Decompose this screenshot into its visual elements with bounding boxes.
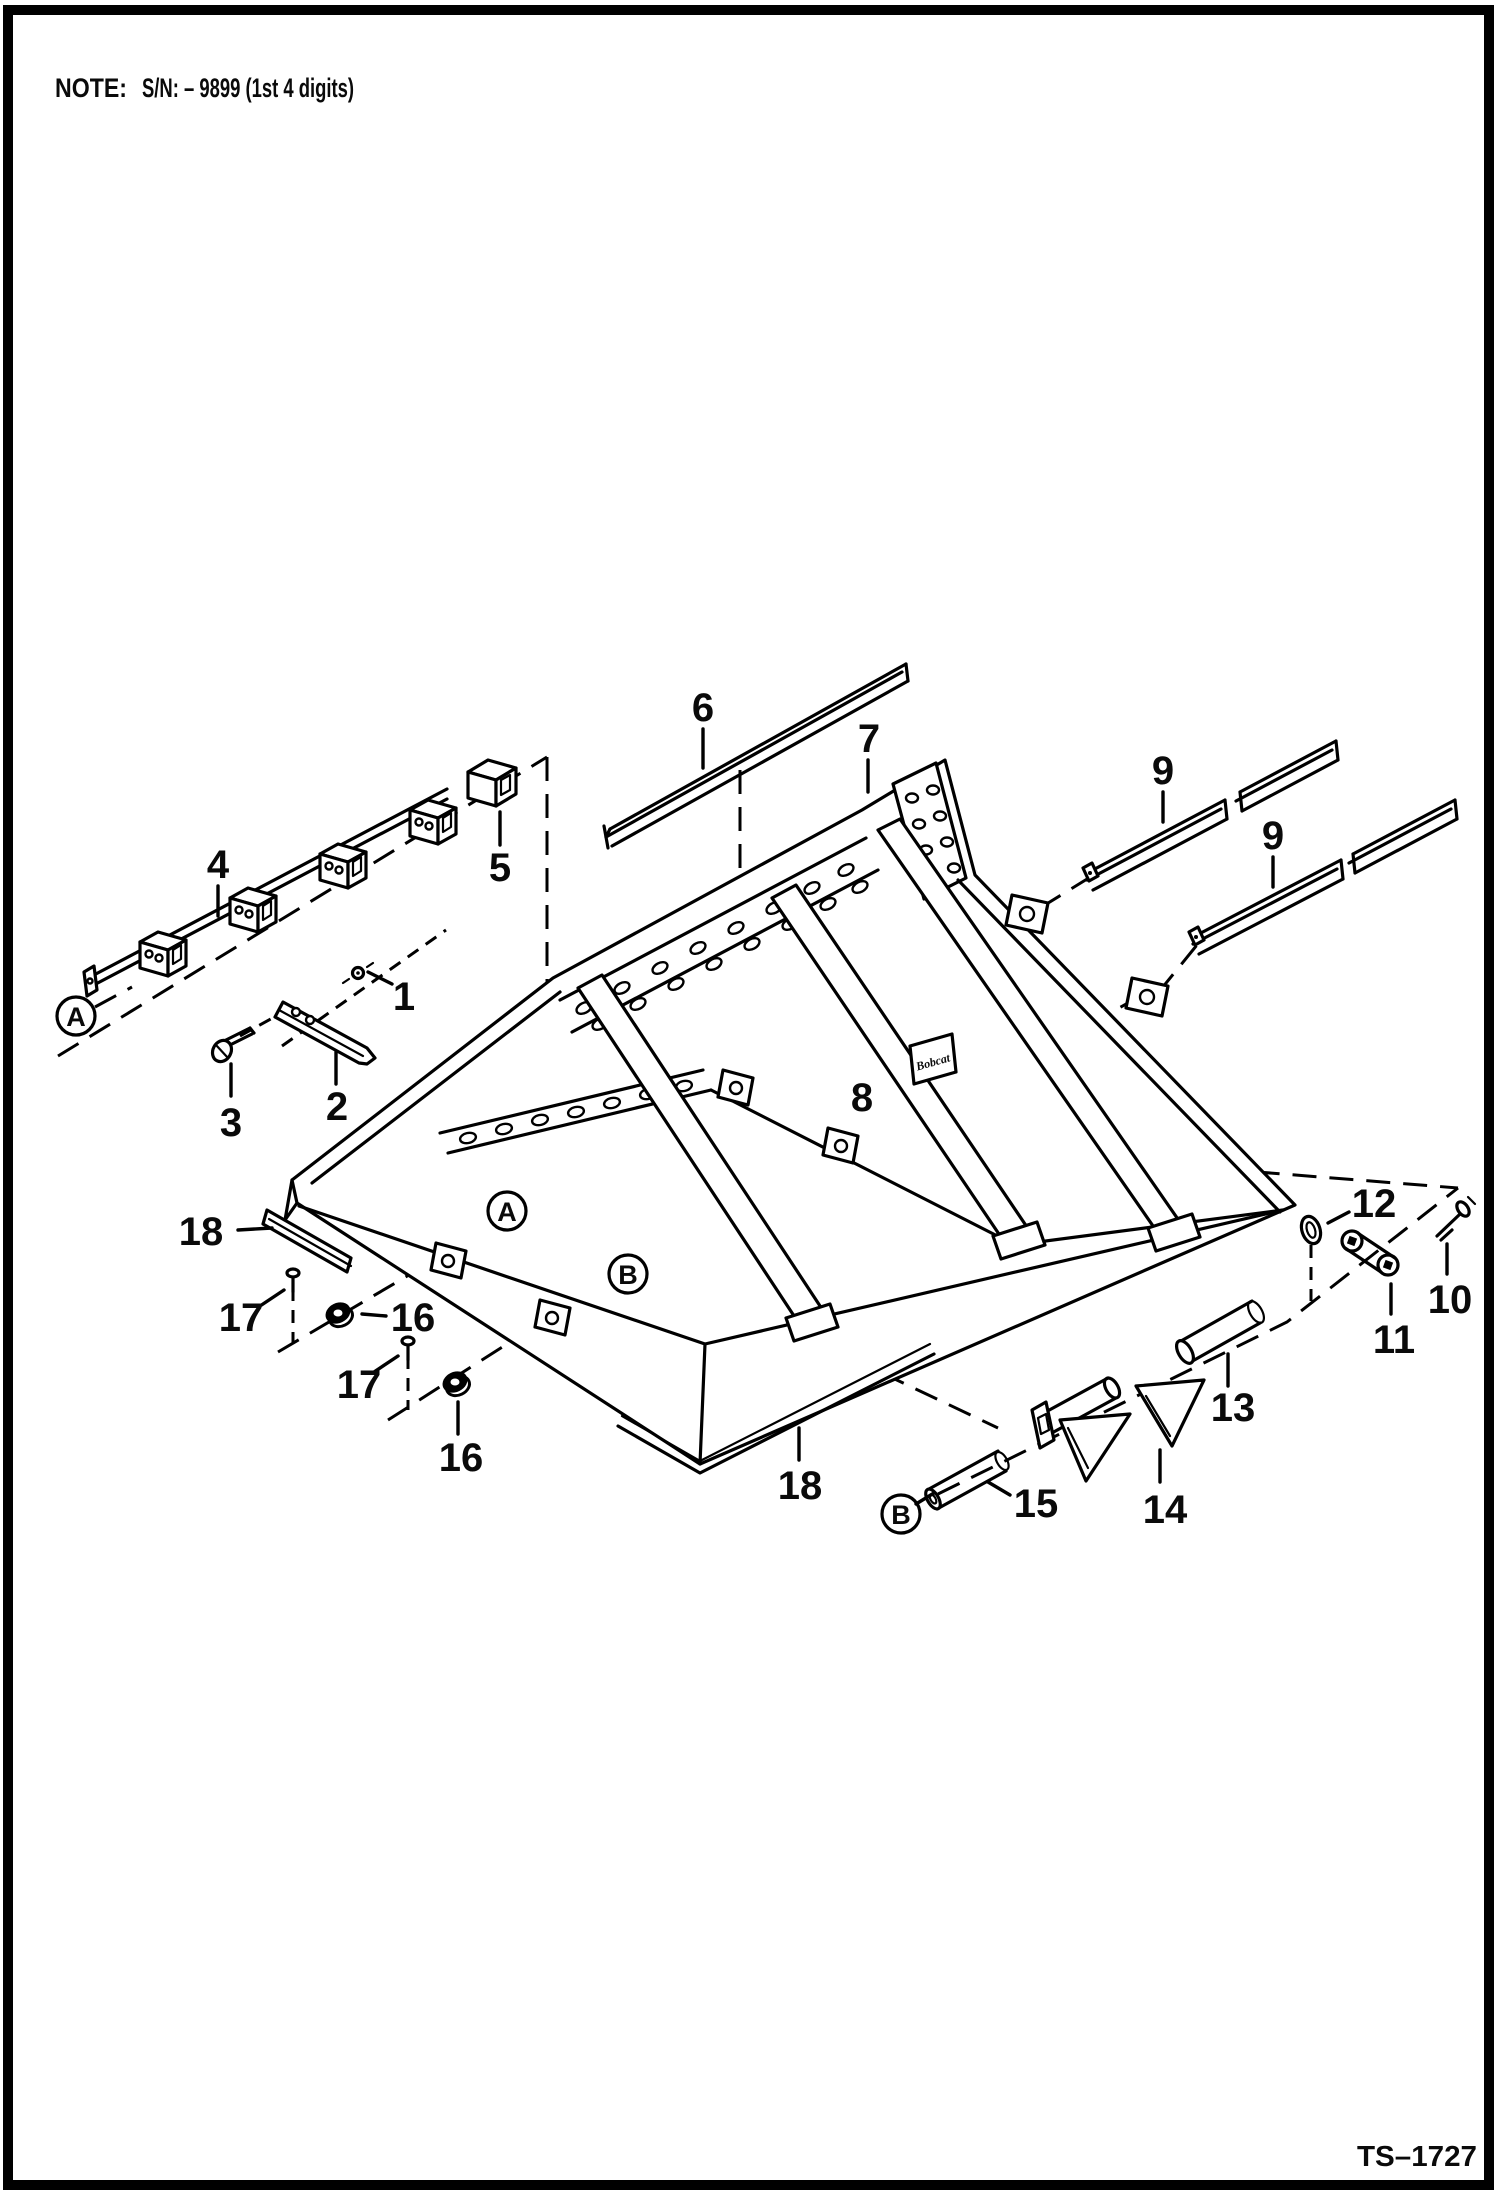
callout-18b: 18 bbox=[778, 1464, 823, 1508]
callout-9b: 9 bbox=[1262, 814, 1284, 858]
hole bbox=[934, 812, 946, 821]
callout-8: 8 bbox=[851, 1076, 873, 1120]
callout-13: 13 bbox=[1211, 1386, 1256, 1430]
note-label: NOTE: bbox=[55, 73, 127, 103]
drawing-code: TS–1727 bbox=[1357, 2141, 1477, 2173]
hole bbox=[941, 838, 953, 847]
callout-2: 2 bbox=[326, 1085, 348, 1129]
lug-hole bbox=[1020, 907, 1034, 921]
callout-5: 5 bbox=[489, 846, 511, 890]
callout-4: 4 bbox=[207, 843, 230, 887]
part5-spacer-block bbox=[468, 760, 516, 806]
clamp-block bbox=[230, 888, 276, 932]
hole bbox=[88, 979, 93, 984]
hole bbox=[948, 864, 960, 873]
callout-17a: 17 bbox=[219, 1296, 264, 1340]
hole bbox=[913, 820, 925, 829]
clamp-block bbox=[140, 932, 186, 976]
callout-15: 15 bbox=[1014, 1482, 1059, 1526]
callout-12: 12 bbox=[1352, 1182, 1397, 1226]
hole bbox=[927, 786, 939, 795]
lug-hole bbox=[442, 1255, 454, 1267]
note-text: S/N: – 9899 (1st 4 digits) bbox=[142, 73, 354, 103]
callout-14: 14 bbox=[1143, 1488, 1188, 1532]
callout-1: 1 bbox=[393, 975, 415, 1019]
lug-hole bbox=[835, 1140, 847, 1152]
callout-3: 3 bbox=[220, 1101, 242, 1145]
bubble-a-frame-label: A bbox=[497, 1197, 517, 1227]
callout-16a: 16 bbox=[391, 1296, 436, 1340]
clamp-block bbox=[320, 844, 366, 888]
callout-16b: 16 bbox=[439, 1436, 484, 1480]
lug-hole bbox=[730, 1082, 742, 1094]
callout-11: 11 bbox=[1373, 1318, 1415, 1362]
hole bbox=[906, 794, 918, 803]
callout-10: 10 bbox=[1428, 1278, 1473, 1322]
bubble-a-left-label: A bbox=[66, 1002, 86, 1032]
lug-hole bbox=[1140, 990, 1154, 1004]
bubble-b-bottom-label: B bbox=[891, 1500, 911, 1530]
lug-hole bbox=[546, 1312, 558, 1324]
callout-7: 7 bbox=[858, 717, 880, 761]
bubble-b-frame-label: B bbox=[618, 1260, 638, 1290]
callout-9a: 9 bbox=[1152, 749, 1174, 793]
callout-6: 6 bbox=[692, 686, 714, 730]
clamp-block bbox=[410, 800, 456, 844]
parts-diagram-svg: NOTE: S/N: – 9899 (1st 4 digits) TS–1727 bbox=[0, 0, 1498, 2194]
manual-page: NOTE: S/N: – 9899 (1st 4 digits) TS–1727 bbox=[0, 0, 1498, 2194]
callout-18a: 18 bbox=[179, 1210, 224, 1254]
callout-17b: 17 bbox=[337, 1363, 382, 1407]
